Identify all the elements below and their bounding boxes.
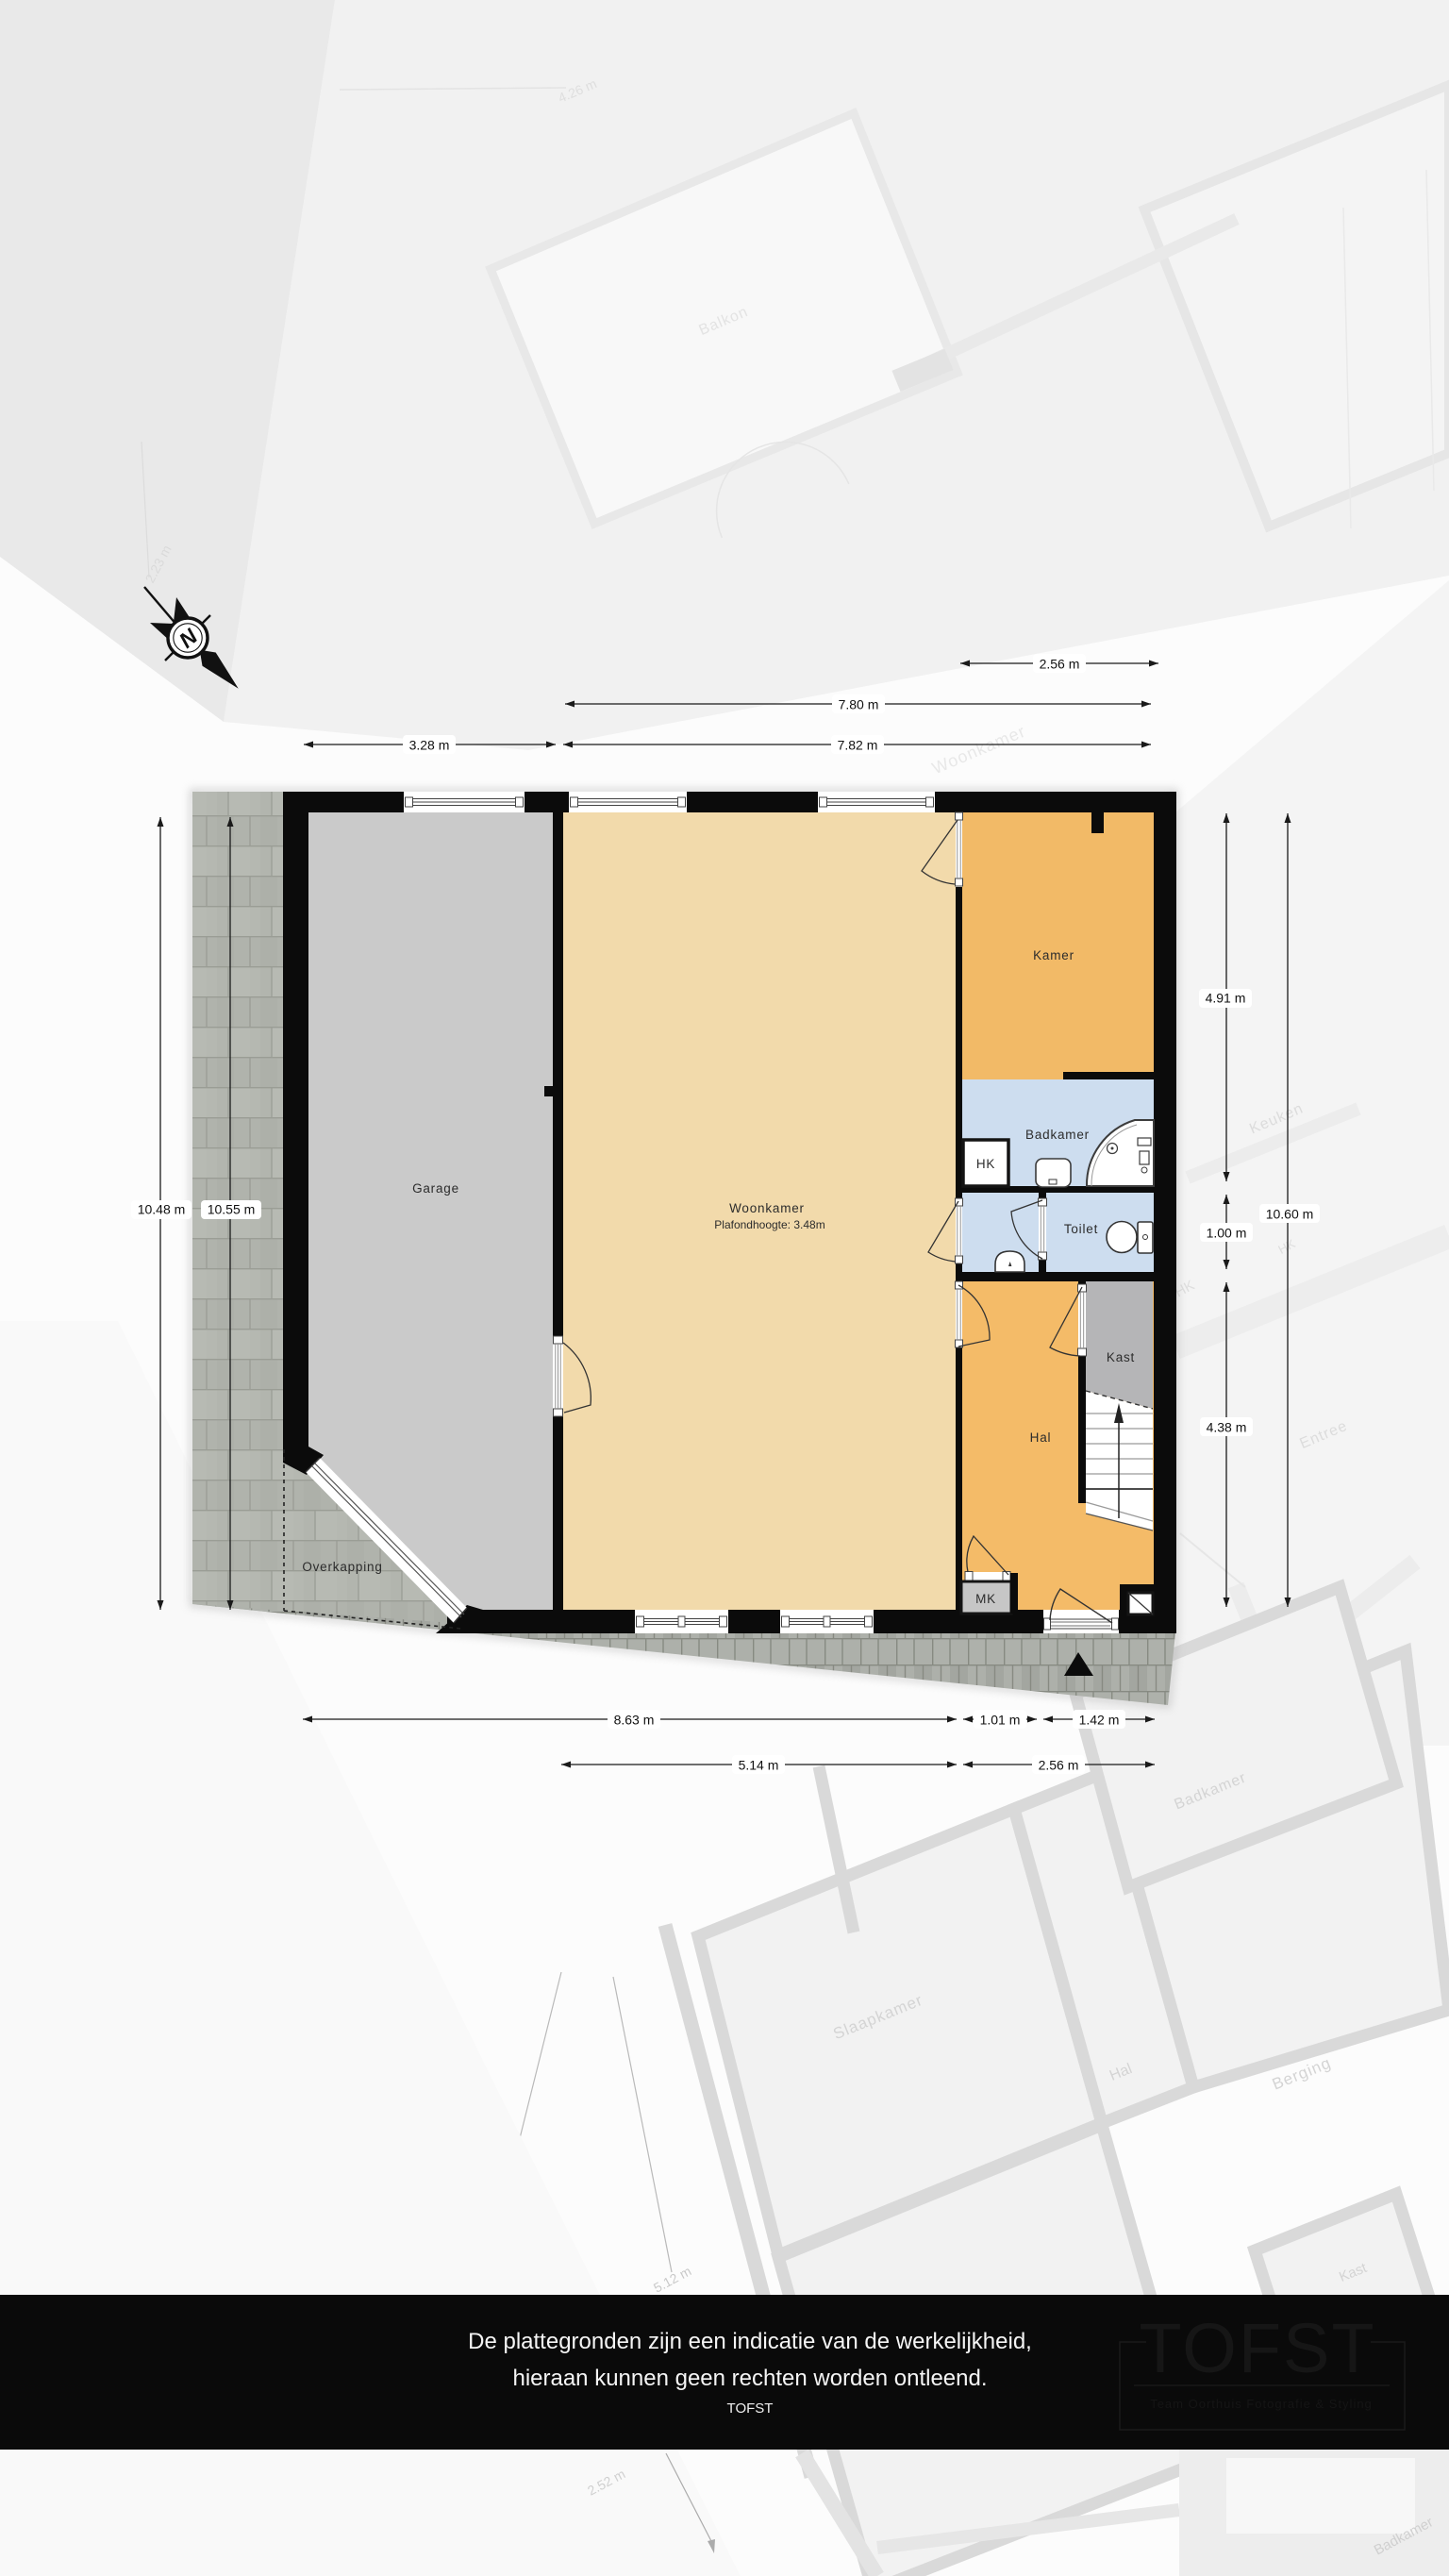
svg-text:Woonkamer: Woonkamer [729,1201,805,1215]
svg-text:MK: MK [975,1592,996,1606]
svg-text:Team Oorthuis Fotografie & Sty: Team Oorthuis Fotografie & Styling [1150,2397,1373,2411]
svg-text:TOFST: TOFST [727,2400,774,2417]
svg-text:2.56 m: 2.56 m [1040,657,1080,672]
svg-text:Kamer: Kamer [1033,948,1074,962]
svg-text:Toilet: Toilet [1064,1222,1098,1236]
svg-text:4.38 m: 4.38 m [1207,1420,1247,1435]
svg-text:Overkapping: Overkapping [302,1560,382,1574]
svg-text:10.55 m: 10.55 m [208,1202,256,1217]
svg-text:Hal: Hal [1030,1430,1052,1445]
svg-text:8.63 m: 8.63 m [614,1713,655,1728]
svg-text:3.28 m: 3.28 m [409,738,450,753]
svg-text:2.56 m: 2.56 m [1039,1758,1079,1773]
svg-text:10.48 m: 10.48 m [138,1202,186,1217]
svg-text:Garage: Garage [412,1181,459,1196]
svg-text:4.91 m: 4.91 m [1206,991,1246,1006]
svg-text:Plafondhoogte: 3.48m: Plafondhoogte: 3.48m [714,1218,824,1231]
svg-text:HK: HK [976,1157,995,1171]
svg-text:5.14 m: 5.14 m [739,1758,779,1773]
svg-text:TOFST: TOFST [1139,2309,1375,2387]
svg-text:Badkamer: Badkamer [1025,1128,1090,1142]
svg-text:Kast: Kast [1107,1350,1135,1364]
svg-text:10.60 m: 10.60 m [1266,1207,1314,1222]
svg-text:7.80 m: 7.80 m [839,697,879,712]
svg-text:De plattegronden zijn een indi: De plattegronden zijn een indicatie van … [468,2329,1032,2354]
svg-text:1.01 m: 1.01 m [980,1713,1021,1728]
svg-text:7.82 m: 7.82 m [838,738,878,753]
svg-text:1.00 m: 1.00 m [1207,1226,1247,1241]
svg-text:1.42 m: 1.42 m [1079,1713,1120,1728]
svg-text:hieraan kunnen geen rechten wo: hieraan kunnen geen rechten worden ontle… [512,2366,987,2391]
